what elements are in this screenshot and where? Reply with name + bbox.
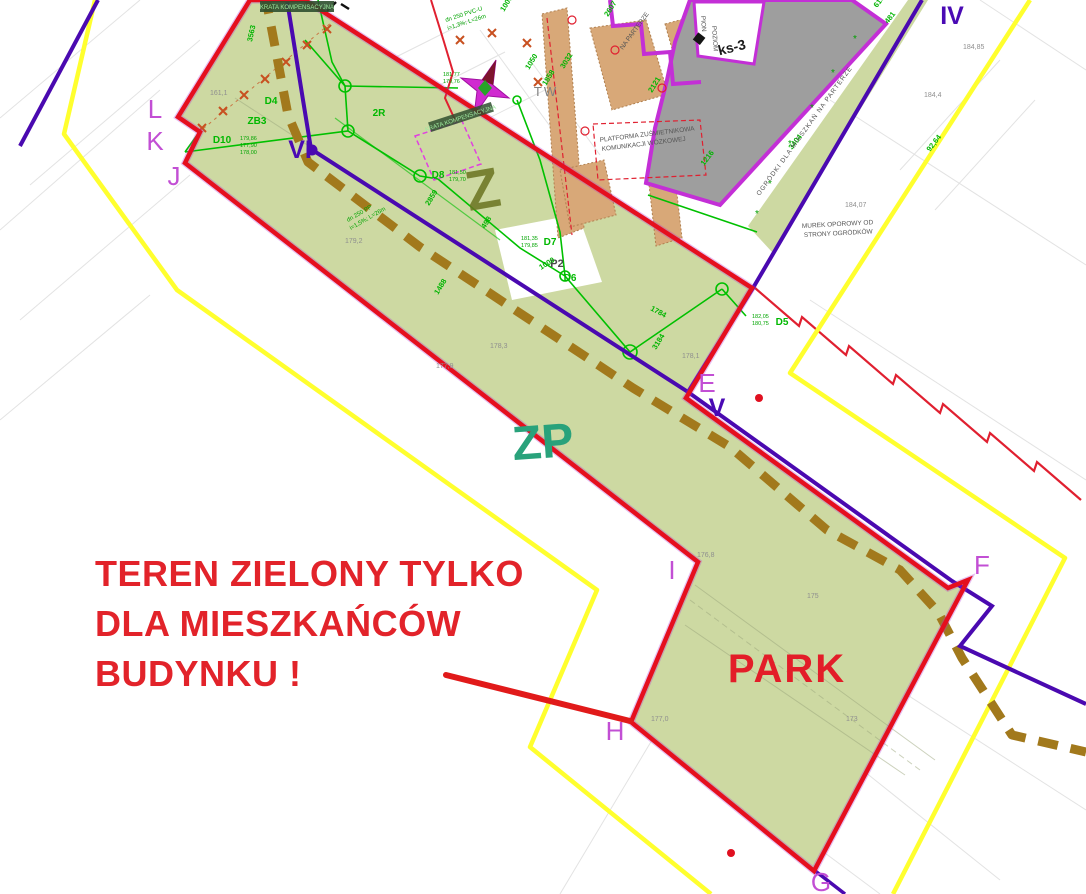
svg-text:184,07: 184,07 bbox=[845, 202, 867, 209]
svg-text:179,76: 179,76 bbox=[443, 79, 460, 85]
note-krata-top: KRATA KOMPENSACYJNA bbox=[260, 1, 334, 12]
note-pion: PION bbox=[699, 16, 707, 33]
drain-label-d6: D6 bbox=[564, 273, 577, 284]
drain-label-d10: D10 bbox=[213, 135, 232, 146]
drain-label-zb3: ZB3 bbox=[248, 116, 267, 127]
svg-text:181,77: 181,77 bbox=[443, 72, 460, 78]
svg-text:180,75: 180,75 bbox=[752, 321, 769, 327]
svg-text:182,05: 182,05 bbox=[752, 314, 769, 320]
svg-text:178,00: 178,00 bbox=[240, 150, 257, 156]
svg-text:181,50: 181,50 bbox=[449, 170, 466, 176]
drain-label-d5: D5 bbox=[776, 317, 789, 328]
svg-text:181,35: 181,35 bbox=[521, 236, 538, 242]
svg-text:2607: 2607 bbox=[602, 0, 618, 18]
point-label-i: I bbox=[668, 555, 675, 585]
svg-text:*: * bbox=[755, 209, 759, 220]
svg-text:176,8: 176,8 bbox=[697, 552, 715, 559]
warning-line-1: TEREN ZIELONY TYLKO bbox=[95, 553, 524, 594]
svg-text:KRATA KOMPENSACYJNA: KRATA KOMPENSACYJNA bbox=[260, 5, 334, 11]
point-label-g: G bbox=[811, 867, 831, 894]
drain-label-d4: D4 bbox=[265, 96, 278, 107]
drain-label-d8: D8 bbox=[432, 170, 445, 181]
warning-line-2: DLA MIESZKAŃCÓW bbox=[95, 602, 461, 644]
svg-text:179,85: 179,85 bbox=[521, 243, 538, 249]
svg-text:161,1: 161,1 bbox=[210, 90, 228, 97]
svg-text:184,85: 184,85 bbox=[963, 44, 985, 51]
svg-text:*: * bbox=[853, 34, 857, 45]
point-label-j: J bbox=[168, 161, 181, 191]
svg-text:173: 173 bbox=[846, 716, 858, 723]
point-label-f: F bbox=[974, 550, 990, 580]
svg-text:179,70: 179,70 bbox=[449, 177, 466, 183]
svg-text:175: 175 bbox=[807, 593, 819, 600]
svg-text:1000: 1000 bbox=[498, 0, 514, 13]
svg-text:6100: 6100 bbox=[871, 0, 888, 9]
svg-text:184,4: 184,4 bbox=[924, 92, 942, 99]
svg-text:*: * bbox=[831, 68, 835, 79]
point-label-k: K bbox=[146, 126, 164, 156]
svg-text:177,9: 177,9 bbox=[436, 363, 454, 370]
svg-text:178,3: 178,3 bbox=[490, 343, 508, 350]
zone-label-park: PARK bbox=[728, 647, 846, 691]
drain-label-d7: D7 bbox=[544, 237, 557, 248]
note-pipe1: dn 250 PVC-U i=1,3%; L=26m bbox=[445, 6, 487, 32]
point-label-v: V bbox=[709, 394, 726, 422]
warning-text: TEREN ZIELONY TYLKO DLA MIESZKAŃCÓW BUDY… bbox=[95, 553, 524, 694]
zone-label-zp: ZP bbox=[510, 414, 575, 471]
site-plan-map: *** *** bbox=[0, 0, 1086, 894]
svg-text:177,90: 177,90 bbox=[240, 143, 257, 149]
red-dot bbox=[755, 394, 763, 402]
svg-text:1050: 1050 bbox=[523, 52, 539, 71]
label-2r: 2R bbox=[373, 108, 387, 119]
leader-line bbox=[446, 675, 630, 721]
svg-text:179,86: 179,86 bbox=[240, 136, 257, 142]
point-label-iv: IV bbox=[940, 2, 964, 30]
map-canvas: *** *** bbox=[0, 0, 1086, 894]
point-label-l: L bbox=[148, 94, 162, 124]
warning-line-3: BUDYNKU ! bbox=[95, 653, 302, 694]
svg-text:179,2: 179,2 bbox=[345, 238, 363, 245]
red-dot bbox=[727, 849, 735, 857]
svg-text:178,1: 178,1 bbox=[682, 353, 700, 360]
point-label-vi: VI bbox=[288, 136, 312, 164]
red-stepped-line bbox=[755, 288, 1081, 500]
svg-text:177,0: 177,0 bbox=[651, 716, 669, 723]
